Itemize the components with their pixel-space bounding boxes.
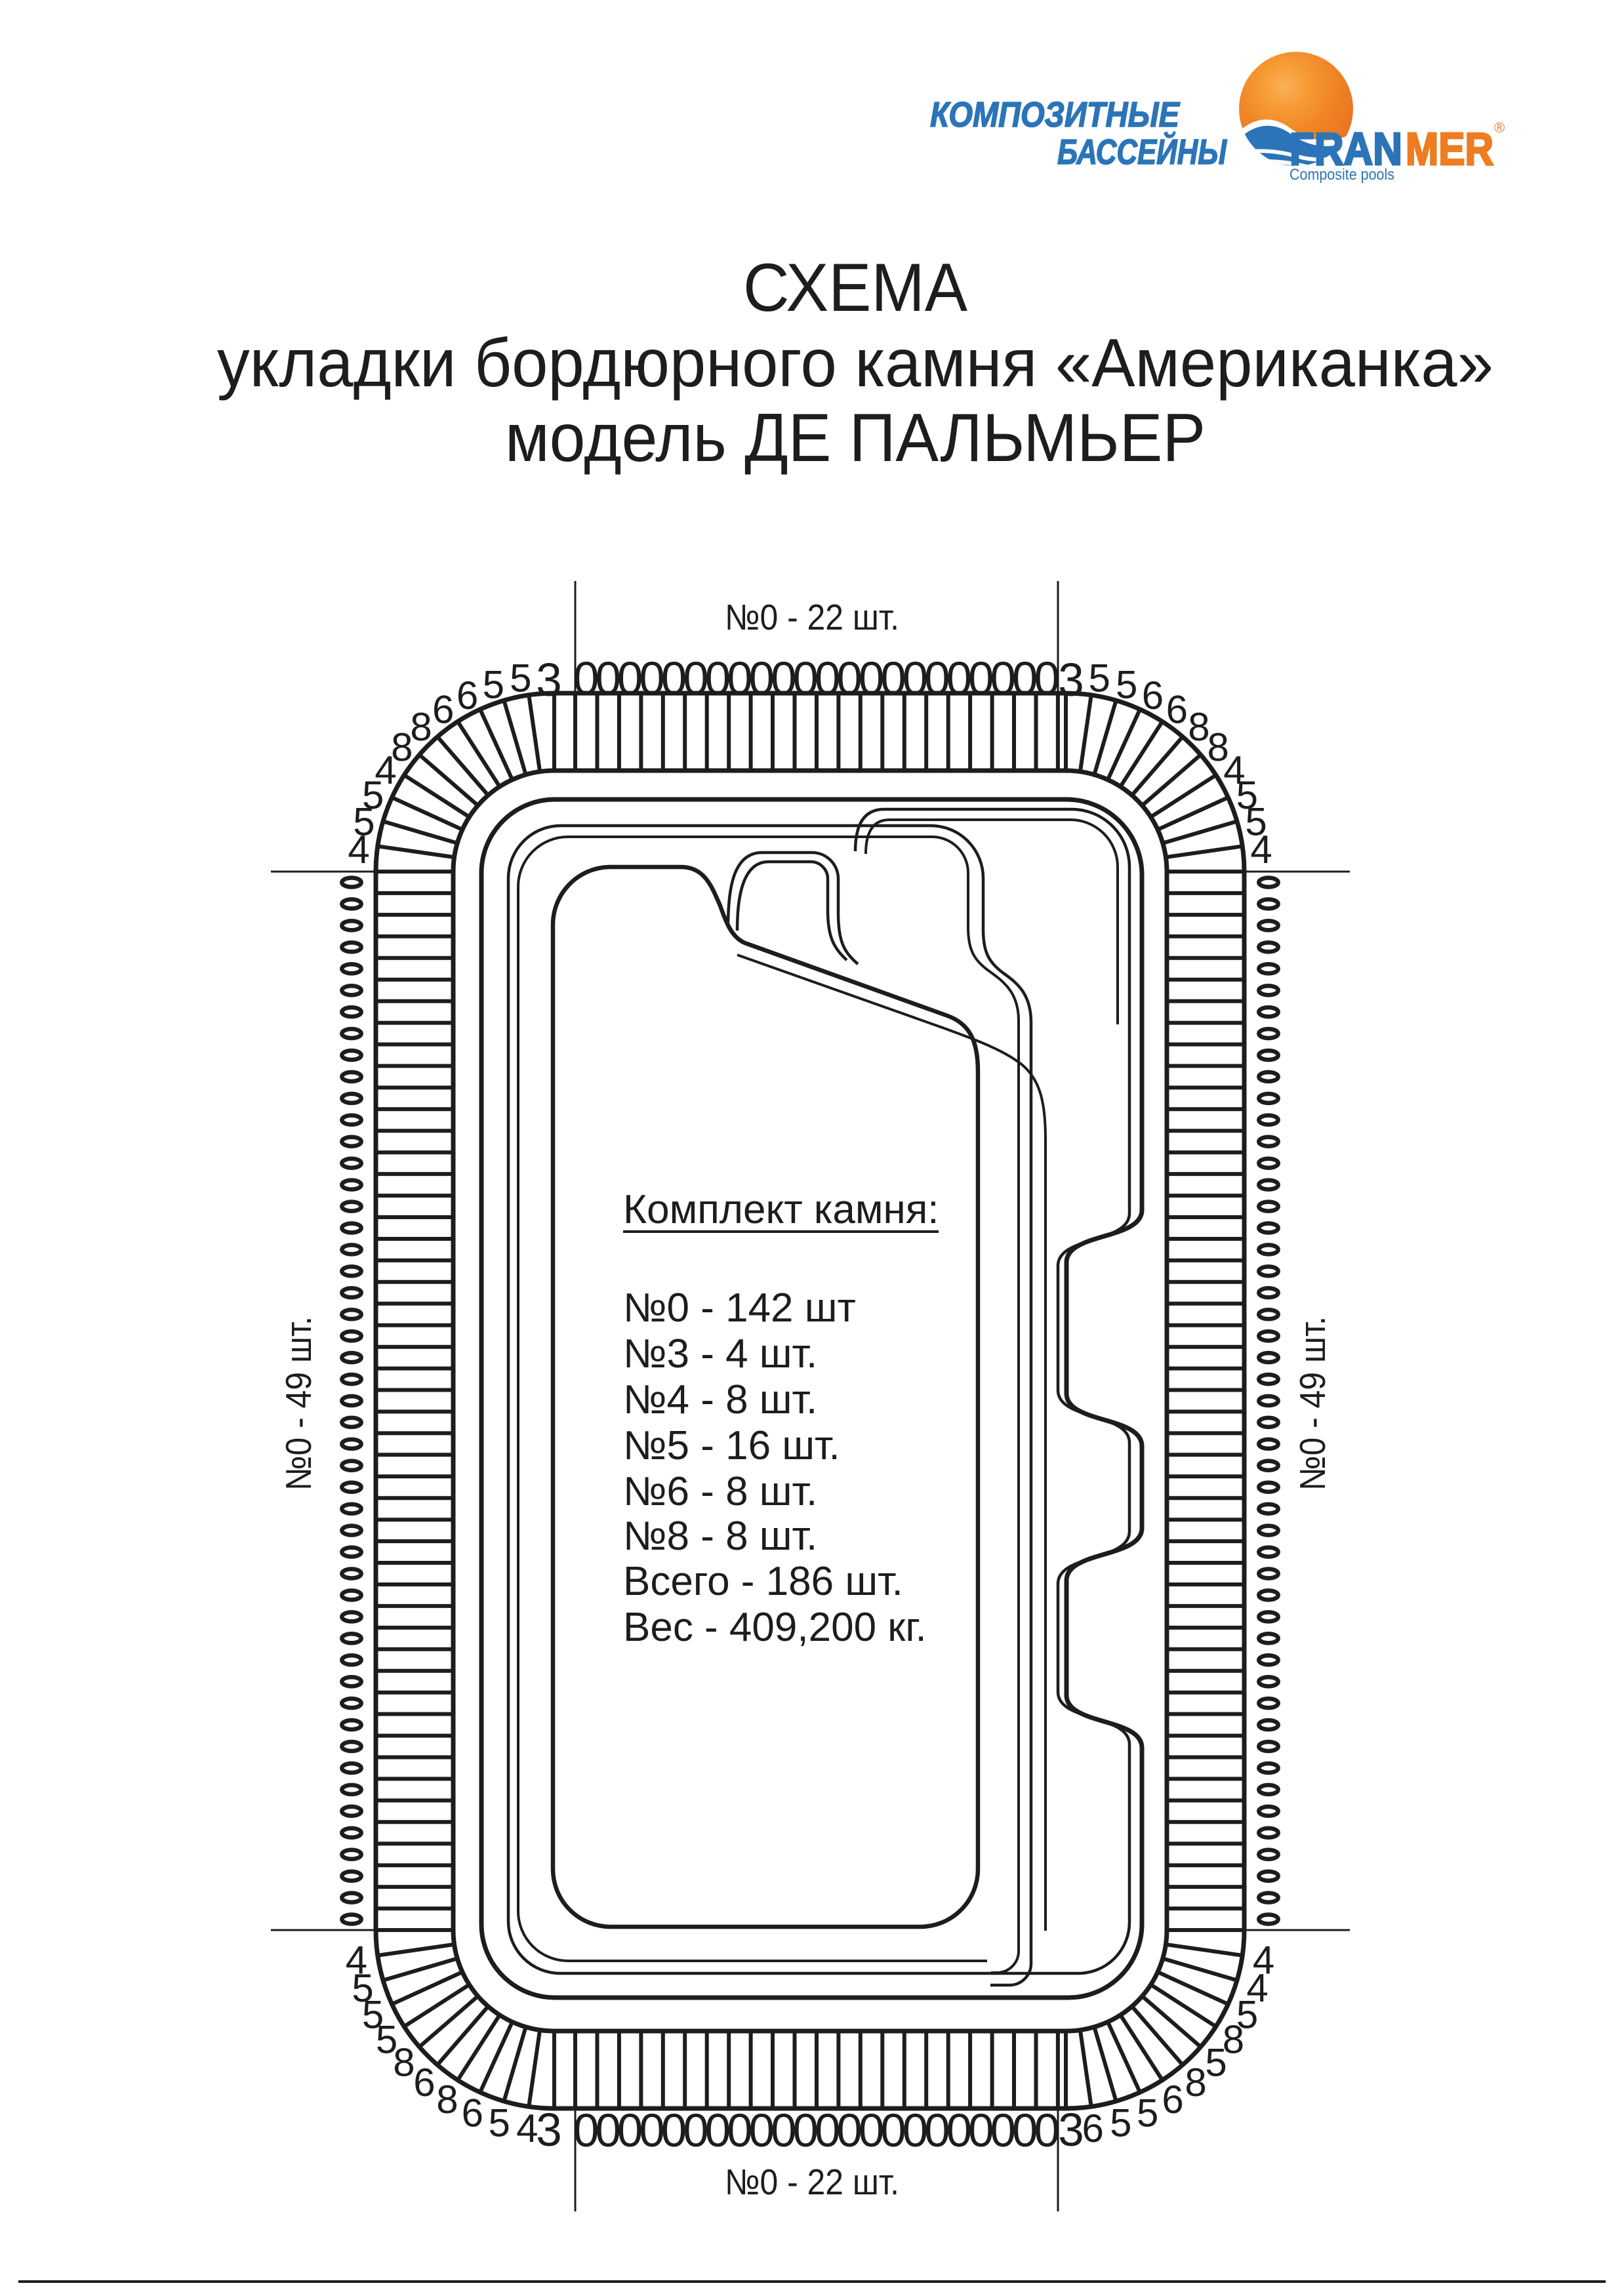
svg-text:8: 8: [410, 705, 432, 749]
svg-text:5: 5: [1116, 663, 1137, 707]
svg-text:4: 4: [516, 2106, 538, 2150]
svg-text:4: 4: [1250, 828, 1272, 872]
svg-text:№3 - 4 шт.: №3 - 4 шт.: [623, 1331, 817, 1377]
svg-text:Комплект камня:: Комплект камня:: [623, 1187, 939, 1232]
svg-text:укладки бордюрного камня «Амер: укладки бордюрного камня «Американка»: [217, 325, 1493, 401]
svg-text:6: 6: [413, 2061, 435, 2105]
svg-text:Вес - 409,200 кг.: Вес - 409,200 кг.: [623, 1605, 927, 1650]
svg-text:6: 6: [1082, 2106, 1104, 2150]
svg-text:4: 4: [348, 828, 369, 872]
svg-text:№0 - 142 шт: №0 - 142 шт: [623, 1285, 856, 1331]
svg-text:3: 3: [536, 2105, 562, 2156]
svg-text:6: 6: [432, 687, 454, 731]
svg-text:№0 - 22 шт.: №0 - 22 шт.: [725, 597, 899, 637]
svg-text:5: 5: [483, 663, 504, 707]
svg-text:5: 5: [1089, 656, 1110, 700]
svg-text:MER: MER: [1406, 123, 1493, 174]
svg-text:КОМПОЗИТНЫЕ: КОМПОЗИТНЫЕ: [930, 95, 1181, 134]
svg-text:3: 3: [1058, 2105, 1084, 2156]
svg-text:5: 5: [1137, 2091, 1158, 2135]
svg-text:СХЕМА: СХЕМА: [743, 250, 968, 326]
svg-text:№8 - 8 шт.: №8 - 8 шт.: [623, 1514, 817, 1559]
svg-text:3: 3: [536, 655, 562, 706]
svg-text:0: 0: [1034, 653, 1060, 705]
svg-text:5: 5: [1110, 2101, 1131, 2145]
svg-text:3: 3: [1058, 655, 1084, 706]
svg-text:6: 6: [457, 674, 478, 717]
svg-text:модель ДЕ ПАЛЬМЬЕР: модель ДЕ ПАЛЬМЬЕР: [505, 400, 1206, 476]
svg-text:6: 6: [462, 2091, 483, 2135]
svg-text:БАССЕЙНЫ: БАССЕЙНЫ: [1057, 131, 1227, 172]
svg-text:Composite pools: Composite pools: [1289, 166, 1394, 184]
svg-text:8: 8: [393, 2040, 415, 2084]
svg-text:8: 8: [1185, 2061, 1206, 2105]
svg-text:№0 - 49 шт.: №0 - 49 шт.: [278, 1316, 319, 1491]
svg-text:5: 5: [489, 2101, 510, 2145]
svg-text:0: 0: [1034, 2105, 1060, 2157]
svg-text:5: 5: [510, 656, 531, 700]
svg-text:6: 6: [1166, 687, 1188, 731]
svg-text:®: ®: [1494, 119, 1505, 136]
svg-text:8: 8: [436, 2078, 458, 2122]
svg-text:№6 - 8 шт.: №6 - 8 шт.: [623, 1469, 817, 1514]
svg-text:5: 5: [1205, 2040, 1227, 2084]
svg-text:№5 - 16 шт.: №5 - 16 шт.: [623, 1423, 840, 1468]
svg-text:6: 6: [1142, 674, 1164, 717]
svg-text:№0 - 22 шт.: №0 - 22 шт.: [725, 2162, 899, 2202]
svg-text:№4 - 8 шт.: №4 - 8 шт.: [623, 1377, 817, 1422]
svg-text:Всего - 186 шт.: Всего - 186 шт.: [623, 1559, 903, 1604]
svg-text:6: 6: [1162, 2078, 1183, 2122]
svg-text:№0 - 49 шт.: №0 - 49 шт.: [1292, 1316, 1333, 1491]
